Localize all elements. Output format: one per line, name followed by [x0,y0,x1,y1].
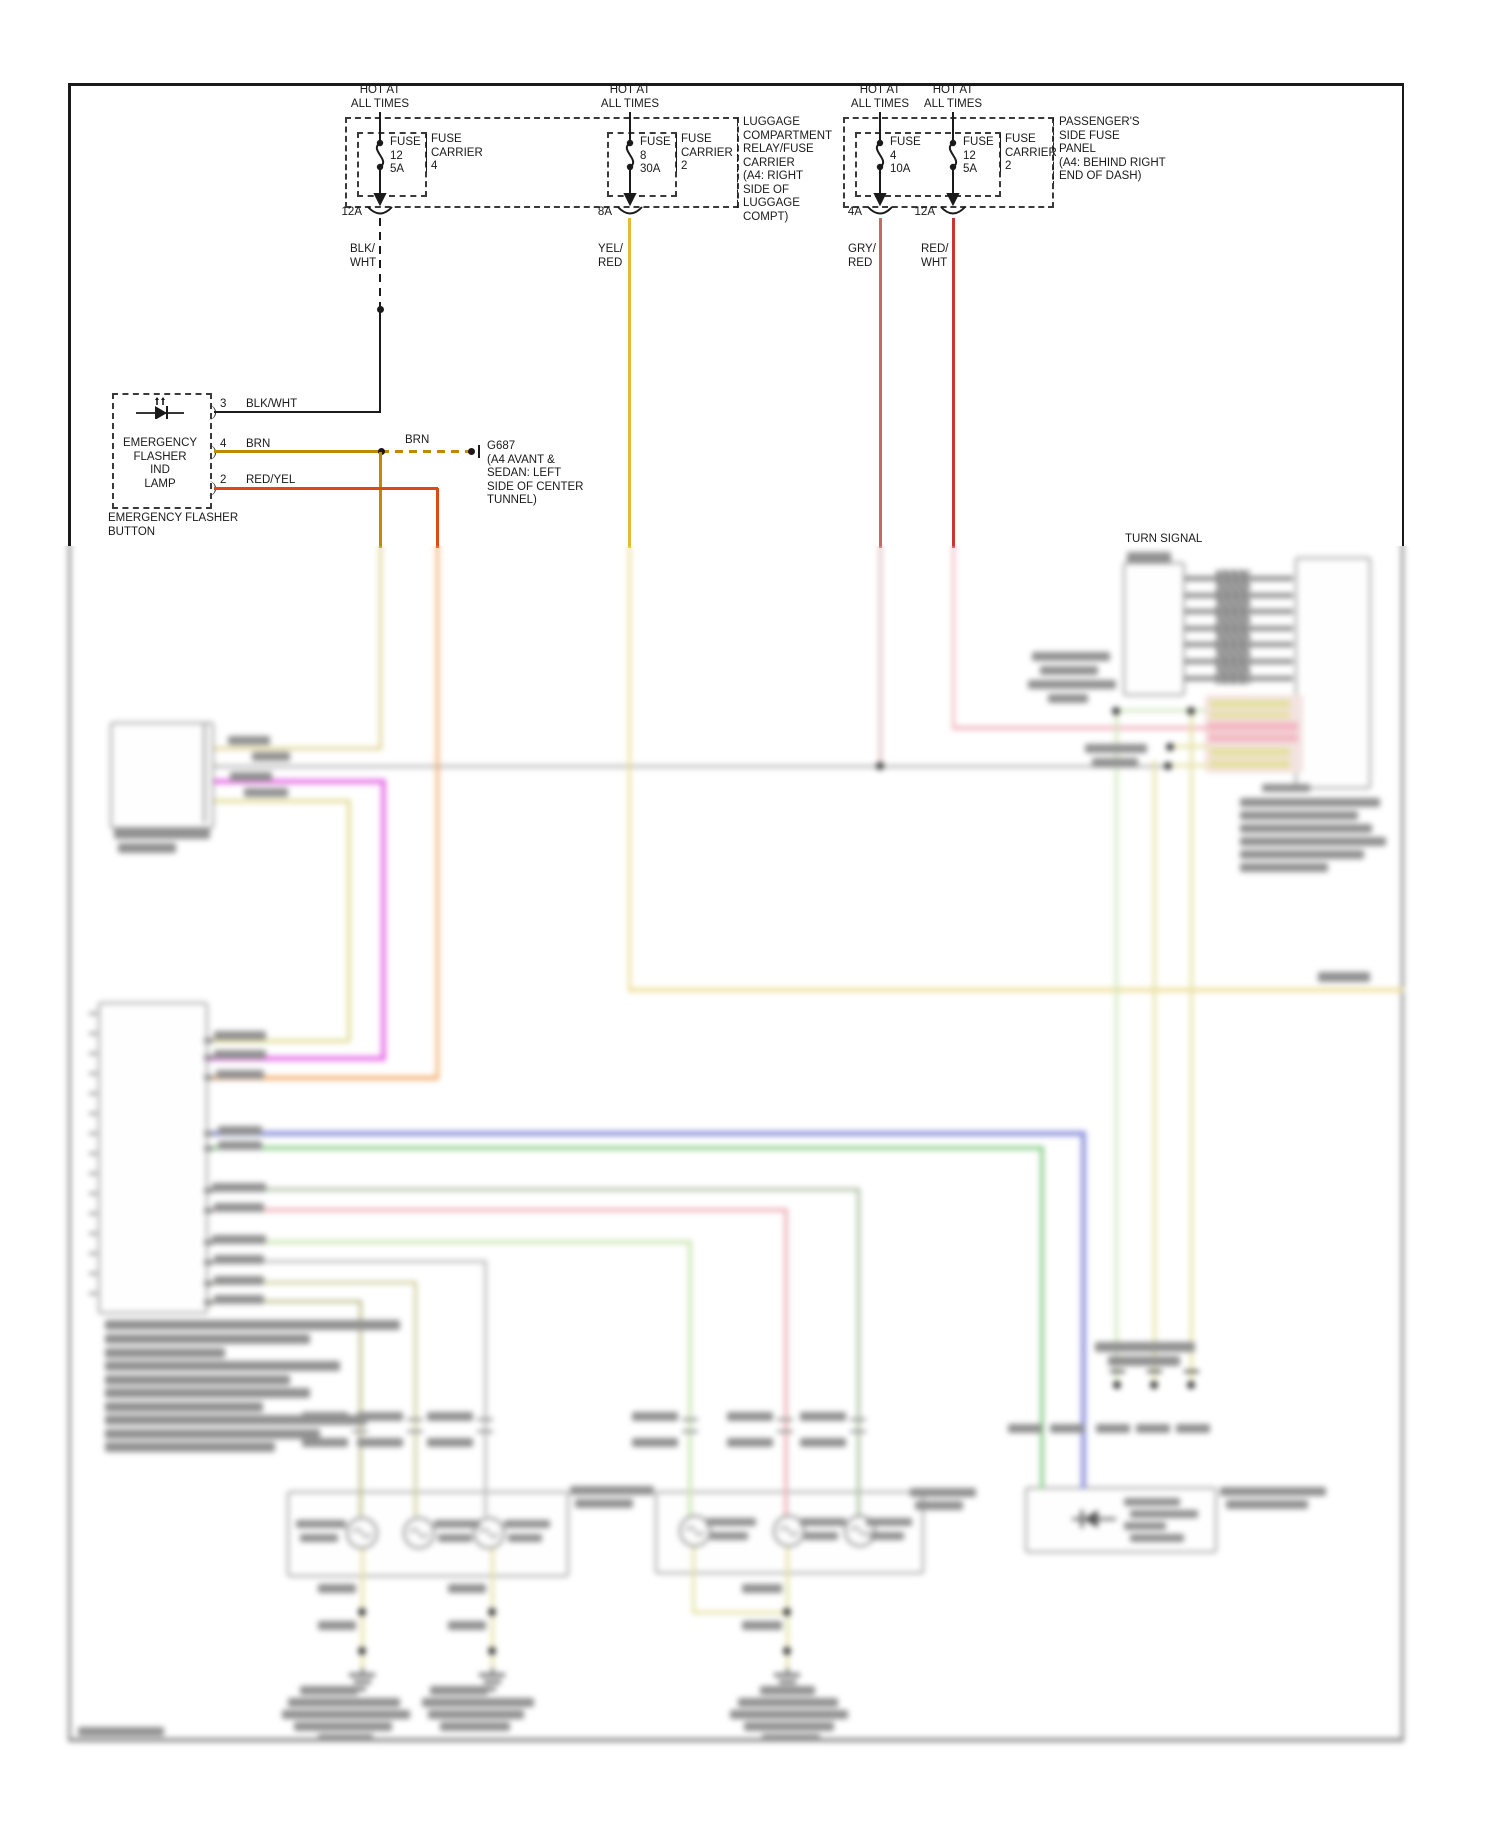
label-line: PASSENGER'S [1059,116,1166,130]
carrier1-bar [426,134,427,172]
module-tick [89,1252,97,1255]
highlight-row [1208,722,1298,731]
fuse-1: FUSE125A [365,112,395,217]
label-line: SIDE OF CENTER [487,481,583,495]
label-line: IND [112,464,208,478]
pin3-number: 3 [220,398,226,412]
blurred-label [302,1438,348,1447]
fuse-4: FUSE125A [938,112,968,217]
blurred-label [318,1734,373,1742]
blurred-label [228,736,270,745]
blurred-label [800,1412,846,1421]
label-line: 4 [890,150,921,164]
connector-label-3: 4A [822,206,862,220]
module-pin-stub [204,1260,213,1265]
gryred-cont-wire [879,530,882,768]
module-tick [89,1172,97,1175]
blurred-label [1240,863,1328,872]
blurred-label [915,1501,963,1510]
junction-dot [358,1608,366,1616]
blurred-label [742,1621,782,1630]
passenger-panel-label: PASSENGER'SSIDE FUSEPANEL(A4: BEHIND RIG… [1059,116,1166,184]
diagram-border-bottom [68,1738,1404,1742]
sw-green-v-wire [1115,711,1118,1387]
label-line: CARRIER [681,147,733,161]
connector-cup-3 [866,205,894,219]
label-line: TUNNEL) [487,494,583,508]
module-tick [89,1112,97,1115]
diagram-border-right [1402,83,1405,546]
blurred-label [1127,552,1171,563]
redyel-cont-wire [436,530,439,1079]
blurred-label [1240,824,1372,833]
blurred-label [430,1686,488,1695]
g687-terminal-bar [478,445,480,458]
gray2-v-wire [484,1260,487,1516]
diagram-border-left-blur [68,530,71,1742]
blurred-label [1124,1522,1166,1530]
highlight-row [1210,760,1290,768]
blurred-label [105,1361,340,1371]
switch-pin-bar [1185,576,1293,581]
blurred-label [357,1412,403,1421]
blurred-label [744,1722,834,1731]
blurred-label [422,1698,534,1707]
blurred-label [214,1295,264,1304]
olive-v-wire [414,1281,417,1516]
label-line: HOT AT [585,84,675,98]
blurred-label [427,1412,473,1421]
junction-dot [1164,762,1172,770]
label-line: RED [598,257,623,271]
connector-cup-4 [939,205,967,219]
switch-pin-bar [1185,609,1293,614]
label-line: 12 [963,150,994,164]
blurred-label [1032,652,1110,661]
label-line: HOT AT [908,84,998,98]
blurred-label [760,1686,815,1695]
sw-yel-v2-wire [1190,711,1193,1387]
label-line: EMERGENCY FLASHER [108,512,238,526]
paleyel-v-wire [347,799,351,1042]
light-switch-box [110,722,214,829]
label-line: END OF DASH) [1059,170,1166,184]
blurred-label [288,1698,400,1707]
yelred-wire [628,218,631,548]
blurred-label [706,1518,756,1526]
pink2-h-wire [204,1208,788,1212]
highlight-row [1210,748,1290,756]
pin2-number: 2 [220,474,226,488]
blurred-label [212,1183,266,1192]
label-line: 10A [890,163,921,177]
ground-bar [484,1680,501,1684]
label-line: BLK/ [350,243,376,257]
blurred-label [910,1488,976,1497]
label-line: 2 [681,160,733,174]
label-line: FUSE [640,136,671,150]
blurred-label [632,1438,678,1447]
junction-dot [783,1608,791,1616]
relay-pin-bar [1147,1370,1162,1373]
conn-tick [477,1418,493,1421]
label-line: ALL TIMES [335,98,425,112]
highlight-row [1210,712,1290,718]
yelred-cont-wire [628,530,631,992]
blurred-label [1226,1500,1308,1509]
pin3-wire [214,411,381,413]
connector-cup-2 [616,205,644,219]
ground-bar [349,1673,375,1677]
wire-label-blkwht: BLK/WHT [350,243,376,270]
blurred-label [1318,972,1370,982]
highlight-row [1210,700,1290,708]
blurred-label [1050,1424,1084,1433]
blurred-label [1130,1534,1184,1542]
label-line: SIDE FUSE [1059,130,1166,144]
blurred-label [318,1584,356,1593]
pin4-brn-wire [214,450,381,453]
dkgreen-h-wire [204,1188,860,1191]
blurred-label [866,1518,912,1526]
label-line: LAMP [112,478,208,492]
blurred-label [762,1734,820,1742]
green-v-wire [1040,1146,1044,1489]
sw-yel-stub1-wire [1170,745,1208,748]
blurred-label [1124,1498,1180,1506]
blurred-label [448,1584,486,1593]
magenta-v-wire [381,779,386,1061]
fuse-name: FUSE125A [963,136,994,177]
light-switch-connector-strip [203,724,206,823]
blurred-label [1240,811,1358,820]
relay-pin-bar [1110,1370,1125,1373]
label-line: FUSE [431,133,483,147]
module-tick [89,1212,97,1215]
pin3-wire-label: BLK/WHT [246,398,297,412]
sw-yel-stub2-wire [1170,764,1208,767]
blurred-label [1262,784,1310,792]
pink-h-wire [952,726,1208,730]
label-line: FUSE [681,133,733,147]
flasher-button-label: EMERGENCY FLASHERBUTTON [108,512,238,539]
diode-icon [1072,1506,1116,1532]
relay-pin-bar [1184,1370,1199,1373]
blurred-label [218,1141,262,1150]
pin2-redyel-wire [214,487,438,490]
splice-dot [377,306,384,313]
junction-dot [488,1608,496,1616]
pin-bracket-4 [207,445,216,460]
switch-pin-bar [1185,659,1293,664]
module-tick [89,1132,97,1135]
blurred-label [118,843,176,853]
label-line: BUTTON [108,526,238,540]
label-line: YEL/ [598,243,623,257]
diagram-border-right-blur [1401,530,1404,1742]
blurred-label [244,788,288,797]
blurred-label [300,1686,358,1695]
blurred-label [438,1534,472,1542]
label-line: 12 [390,150,421,164]
blurred-label [570,1486,654,1495]
carrier3-label: FUSECARRIER2 [1005,133,1057,174]
hot-label-1: HOT ATALL TIMES [335,84,425,111]
blurred-label [1092,758,1138,767]
blurred-label [1085,744,1147,753]
blue-h-wire [204,1131,1084,1136]
label-line: LUGGAGE [743,197,832,211]
module-pin-stub [204,1131,213,1136]
blurred-label [428,1710,524,1719]
label-line: 2 [1005,160,1057,174]
turn-signal-switch-box [1123,562,1185,696]
fuse-name: FUSE830A [640,136,671,177]
switch-pin-bar [1185,626,1293,631]
blurred-label [504,1520,550,1528]
gnd-m1h-wire [692,1611,788,1614]
junction-dot [1112,707,1120,715]
blurred-label [742,1584,782,1593]
label-line: RED/ [921,243,948,257]
module-tick [89,1072,97,1075]
blkwht-wire [379,309,381,413]
label-line: FUSE [963,136,994,150]
olive2-v-wire [359,1300,362,1516]
blurred-label [508,1534,542,1542]
fuse-name: FUSE410A [890,136,921,177]
carrier1-label: FUSECARRIER4 [431,133,483,174]
label-line: (A4 AVANT & [487,454,583,468]
label-line: COMPT) [743,211,832,225]
blurred-label [1176,1424,1210,1433]
conn-tick [777,1430,793,1433]
conn-tick [407,1418,423,1421]
carrier2-label: FUSECARRIER2 [681,133,733,174]
label-line: PANEL [1059,143,1166,157]
wire-label-yelred: YEL/RED [598,243,623,270]
blurred-label [230,772,272,781]
hot-label-4: HOT ATALL TIMES [908,84,998,111]
blurred-label [1108,1356,1180,1366]
module-pin-stub [204,1300,213,1305]
luggage-carrier-label: LUGGAGECOMPARTMENTRELAY/FUSECARRIER(A4: … [743,116,832,224]
label-line: COMPARTMENT [743,130,832,144]
lamp-icon [345,1516,379,1550]
label-line: ALL TIMES [908,98,998,112]
carrier3-bar [1000,134,1001,172]
label-line: (A4: BEHIND RIGHT [1059,157,1166,171]
luggage-label-bar [737,118,738,208]
blurred-label [1220,1487,1326,1496]
flasher-lamp-label: EMERGENCYFLASHERINDLAMP [112,437,208,491]
pink2-v-wire [784,1208,788,1516]
module-tick [89,1192,97,1195]
module-pin-stub [204,1038,213,1043]
ground-bar [779,1680,796,1684]
blurred-label [214,1276,264,1285]
blue-v-wire [1081,1131,1086,1489]
label-line: SEDAN: LEFT [487,467,583,481]
module-pin-stub [204,1055,213,1060]
module-pin-stub [204,1075,213,1080]
diagram-border-top [68,83,1404,86]
ground-bar [488,1687,496,1691]
label-line: 5A [963,163,994,177]
label-line: RED [848,257,876,271]
carrier2-bar [676,134,677,172]
ls-pin1-wire [214,747,380,750]
label-line: 30A [640,163,671,177]
label-line: FLASHER [112,451,208,465]
blurred-label [1008,1424,1042,1433]
blurred-label [318,1621,356,1630]
blurred-label [632,1412,678,1421]
blurred-label [105,1429,320,1439]
blurred-label [105,1442,275,1452]
module-pin-stub [204,1208,213,1213]
wiring-diagram-page: HOT ATALL TIMES HOT ATALL TIMES HOT ATAL… [0,0,1500,1828]
label-line: WHT [921,257,948,271]
relay-box [1025,1487,1217,1553]
blurred-label [214,1031,266,1040]
conn-tick [407,1430,423,1433]
label-line: EMERGENCY [112,437,208,451]
conn-tick [477,1430,493,1433]
green2-h-wire [204,1240,692,1244]
lamp-icon [402,1516,436,1550]
module-pin-stub [204,1146,213,1151]
junction-dot [358,1647,366,1655]
blurred-label [710,1532,748,1540]
fuse-3: FUSE410A [865,112,895,217]
label-line: WHT [350,257,376,271]
redwht-cont-wire [952,530,955,730]
pin2-wire-label: RED/YEL [246,474,295,488]
control-module-box [98,1002,208,1314]
blurred-label [78,1727,164,1736]
blurred-label [727,1412,773,1421]
g687-dot [468,448,475,455]
blkwht-wire-dashed [379,218,381,310]
module-tick [89,1052,97,1055]
label-line: 4 [431,160,483,174]
module-tick [89,1272,97,1275]
label-line: (A4: RIGHT [743,170,832,184]
blurred-label [300,1534,338,1542]
blurred-label [1240,850,1364,859]
label-line: 8 [640,150,671,164]
brn-dashed-wire [381,450,473,453]
module-tick [89,1032,97,1035]
conn-tick [682,1418,698,1421]
passenger-label-bar [1053,118,1054,184]
blurred-label [1240,837,1386,846]
label-line: G687 [487,440,583,454]
connector-label-1: 12A [322,206,362,220]
diagram-border-left [68,83,71,546]
junction-dot [1150,1381,1158,1389]
gray-long-wire [214,765,1170,768]
ground-bar [358,1687,366,1691]
highlight-row [1208,734,1298,742]
label-line: SIDE OF [743,184,832,198]
blurred-label [357,1438,403,1447]
blurred-label [1096,1424,1130,1433]
paleyel-h1-wire [214,799,348,803]
junction-dot [1113,1381,1121,1389]
indicator-led-icon [136,397,184,419]
blurred-label [1130,1510,1198,1518]
hot-label-2: HOT ATALL TIMES [585,84,675,111]
conn-tick [682,1430,698,1433]
splice-wire-label: BRN [405,434,429,448]
module-tick [89,1012,97,1015]
label-line: CARRIER [431,147,483,161]
connector-cup-1 [366,205,394,219]
label-line: RELAY/FUSE [743,143,832,157]
junction-dot [1187,1381,1195,1389]
redwht-wire [952,218,955,548]
wire-label-gryred: GRY/RED [848,243,876,270]
blurred-label [105,1388,310,1398]
ground-bar [479,1673,505,1677]
blurred-label [282,1710,410,1719]
module-tick [89,1092,97,1095]
gnd-m1-wire [692,1546,695,1614]
blurred-label [800,1438,846,1447]
redyel-down-wire [436,488,439,548]
blurred-label [1095,1342,1195,1352]
blurred-label [214,1203,264,1212]
blurred-label [1028,680,1116,689]
blurred-label [804,1532,838,1540]
conn-tick [777,1418,793,1421]
ground-bar [354,1680,371,1684]
junction-dot [876,762,884,770]
fuse-2: FUSE830A [615,112,645,217]
switch-pin-bar [1185,593,1293,598]
junction-dot [488,1647,496,1655]
blurred-label [448,1621,486,1630]
junction-dot [1187,707,1195,715]
fuse-name: FUSE125A [390,136,421,177]
blurred-label [870,1532,904,1540]
blurred-label [105,1320,400,1330]
switch-pin-bar [1185,676,1293,681]
blurred-label [105,1402,263,1412]
label-line: ALL TIMES [585,98,675,112]
connector-label-4: 12A [895,206,935,220]
conn-tick [850,1430,866,1433]
blurred-label [575,1499,633,1508]
label-line: CARRIER [1005,147,1057,161]
blurred-label [105,1348,225,1358]
blurred-label [114,828,210,839]
blurred-label [105,1334,310,1344]
brn-cont-wire [379,530,382,750]
blurred-label [730,1710,848,1719]
turn-signal-label: TURN SIGNAL [1125,533,1202,547]
blurred-label [1240,798,1380,807]
blurred-label [216,1070,264,1079]
blurred-label [105,1375,290,1385]
label-line: LUGGAGE [743,116,832,130]
junction-dot [1166,743,1174,751]
label-line: GRY/ [848,243,876,257]
blurred-label [214,1050,266,1059]
module-tick [89,1292,97,1295]
